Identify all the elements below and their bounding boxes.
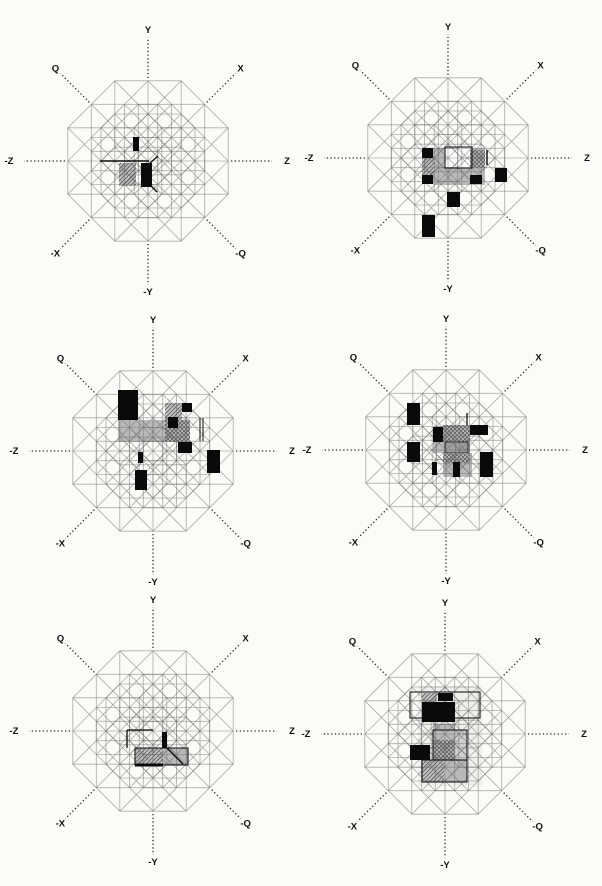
highlight-edge [150, 156, 158, 163]
axis-line-Q [360, 70, 389, 99]
filled-cell-black [162, 732, 167, 748]
axis-line--X [358, 509, 387, 538]
axis-label--Y: -Y [148, 857, 158, 868]
lattice-grid [365, 654, 525, 814]
axis-label--Q: -Q [235, 249, 246, 260]
axis-label-Z: Z [584, 153, 590, 164]
projection-3: YXQZ-Z-X-Q-Y [0, 295, 301, 590]
axis-line--Q [505, 509, 534, 538]
axis-label-Q: Q [352, 60, 359, 71]
filled-cell-black [141, 163, 152, 187]
figure-grid: YXQZ-Z-X-Q-YYXQZ-Z-X-Q-YYXQZ-Z-X-Q-YYXQZ… [0, 0, 602, 886]
filled-cell-black [422, 148, 433, 158]
axis-label--Z: -Z [305, 153, 314, 164]
axis-label--Q: -Q [240, 819, 251, 830]
axis-line-Q [65, 643, 94, 672]
axis-label--Y: -Y [148, 577, 158, 588]
axis-line-X [507, 70, 536, 99]
filled-cell-black [470, 425, 488, 435]
axis-label-X: X [534, 636, 541, 647]
projection-6: YXQZ-Z-X-Q-Y [301, 590, 602, 886]
axis-label-Q: Q [52, 63, 59, 74]
axis-line-Q [357, 646, 386, 675]
axis-label--Q: -Q [533, 538, 544, 549]
filled-cell-black [182, 403, 192, 412]
filled-cell-black [118, 390, 138, 420]
axis-line--X [65, 510, 94, 539]
lattice-grid [366, 370, 526, 530]
axis-label-Y: Y [150, 595, 157, 606]
axis-label--Y: -Y [440, 860, 450, 871]
axis-label--X: -X [56, 539, 66, 550]
axis-label--X: -X [351, 246, 361, 257]
filled-cell-black [407, 403, 420, 425]
axis-label--Q: -Q [535, 246, 546, 257]
axis-label--X: -X [56, 819, 66, 830]
filled-cell-black [495, 168, 507, 182]
projection-5-panel: YXQZ-Z-X-Q-Y [0, 590, 301, 886]
lattice-grid [368, 78, 528, 238]
axis-label-Q: Q [349, 636, 356, 647]
axis-line--X [357, 793, 386, 822]
axis-label-Z: Z [289, 726, 295, 737]
axis-line--X [60, 220, 89, 249]
axis-label--X: -X [348, 822, 358, 833]
axis-label-Z: Z [284, 156, 290, 167]
axis-line-Q [358, 362, 387, 391]
projection-4-panel: YXQZ-Z-X-Q-Y [301, 295, 602, 590]
axis-line-X [505, 362, 534, 391]
axis-label-Z: Z [581, 729, 587, 740]
axis-label-Y: Y [445, 22, 452, 33]
axis-line-X [504, 646, 533, 675]
axis-label-X: X [537, 60, 544, 71]
filled-cell-black [480, 452, 493, 477]
axis-label-Q: Q [57, 633, 64, 644]
axis-label--Q: -Q [240, 539, 251, 550]
projection-3-panel: YXQZ-Z-X-Q-Y [0, 295, 301, 590]
axis-label--Y: -Y [143, 287, 153, 295]
axis-label--Z: -Z [303, 445, 312, 456]
axis-label-Y: Y [442, 598, 449, 609]
filled-cell-black [178, 442, 192, 453]
axis-line-X [207, 73, 236, 102]
axis-line-Q [60, 73, 89, 102]
filled-cell-black [422, 702, 455, 722]
projection-6-panel: YXQZ-Z-X-Q-Y [301, 590, 602, 886]
axis-label--X: -X [51, 249, 61, 260]
projection-4: YXQZ-Z-X-Q-Y [301, 295, 602, 590]
filled-cell-black [438, 693, 453, 701]
projection-5: YXQZ-Z-X-Q-Y [0, 590, 301, 886]
axis-line--Q [212, 510, 241, 539]
axis-label-Y: Y [150, 315, 157, 326]
projection-1-panel: YXQZ-Z-X-Q-Y [0, 0, 301, 295]
axis-label-X: X [535, 352, 542, 363]
axis-label-Y: Y [145, 25, 152, 36]
filled-cell-black [422, 175, 433, 184]
axis-label--Q: -Q [532, 822, 543, 833]
axis-label-Q: Q [57, 353, 64, 364]
axis-label--Z: -Z [302, 729, 311, 740]
axis-label-X: X [242, 633, 249, 644]
axis-label--Z: -Z [10, 726, 19, 737]
axis-line--Q [207, 220, 236, 249]
axis-line--Q [507, 217, 536, 246]
filled-cell-black [433, 427, 443, 442]
filled-cell-black [407, 442, 420, 462]
filled-cell-hatch [422, 693, 437, 703]
axis-label--X: -X [349, 538, 359, 549]
axis-label-Z: Z [582, 445, 588, 456]
axis-label-Y: Y [443, 314, 450, 325]
filled-cell-black [133, 137, 139, 151]
filled-cell-black [432, 462, 437, 475]
axis-label--Y: -Y [443, 284, 453, 295]
axis-label--Y: -Y [441, 576, 451, 587]
axis-label-Q: Q [350, 352, 357, 363]
axis-label-X: X [237, 63, 244, 74]
projection-2-panel: YXQZ-Z-X-Q-Y [301, 0, 602, 295]
axis-line--Q [504, 793, 533, 822]
axis-line--Q [212, 790, 241, 819]
axis-line--X [65, 790, 94, 819]
filled-cell-black [138, 452, 143, 463]
axis-label--Z: -Z [5, 156, 14, 167]
axis-line-Q [65, 363, 94, 392]
axis-line-X [212, 363, 241, 392]
filled-cell-black [422, 215, 435, 237]
filled-cell-black [207, 450, 220, 473]
axis-line--X [360, 217, 389, 246]
axis-line-X [212, 643, 241, 672]
filled-cell-black [453, 462, 460, 477]
filled-cell-black [410, 745, 430, 760]
axis-label-X: X [242, 353, 249, 364]
projection-1: YXQZ-Z-X-Q-Y [0, 0, 301, 295]
filled-cell-black [470, 175, 482, 184]
filled-cell-black [447, 192, 460, 207]
axis-label-Z: Z [289, 446, 295, 457]
filled-cell-black [168, 417, 178, 428]
lattice-grid [73, 651, 233, 811]
axis-label--Z: -Z [10, 446, 19, 457]
projection-2: YXQZ-Z-X-Q-Y [301, 0, 602, 295]
filled-cell-black [135, 470, 147, 490]
